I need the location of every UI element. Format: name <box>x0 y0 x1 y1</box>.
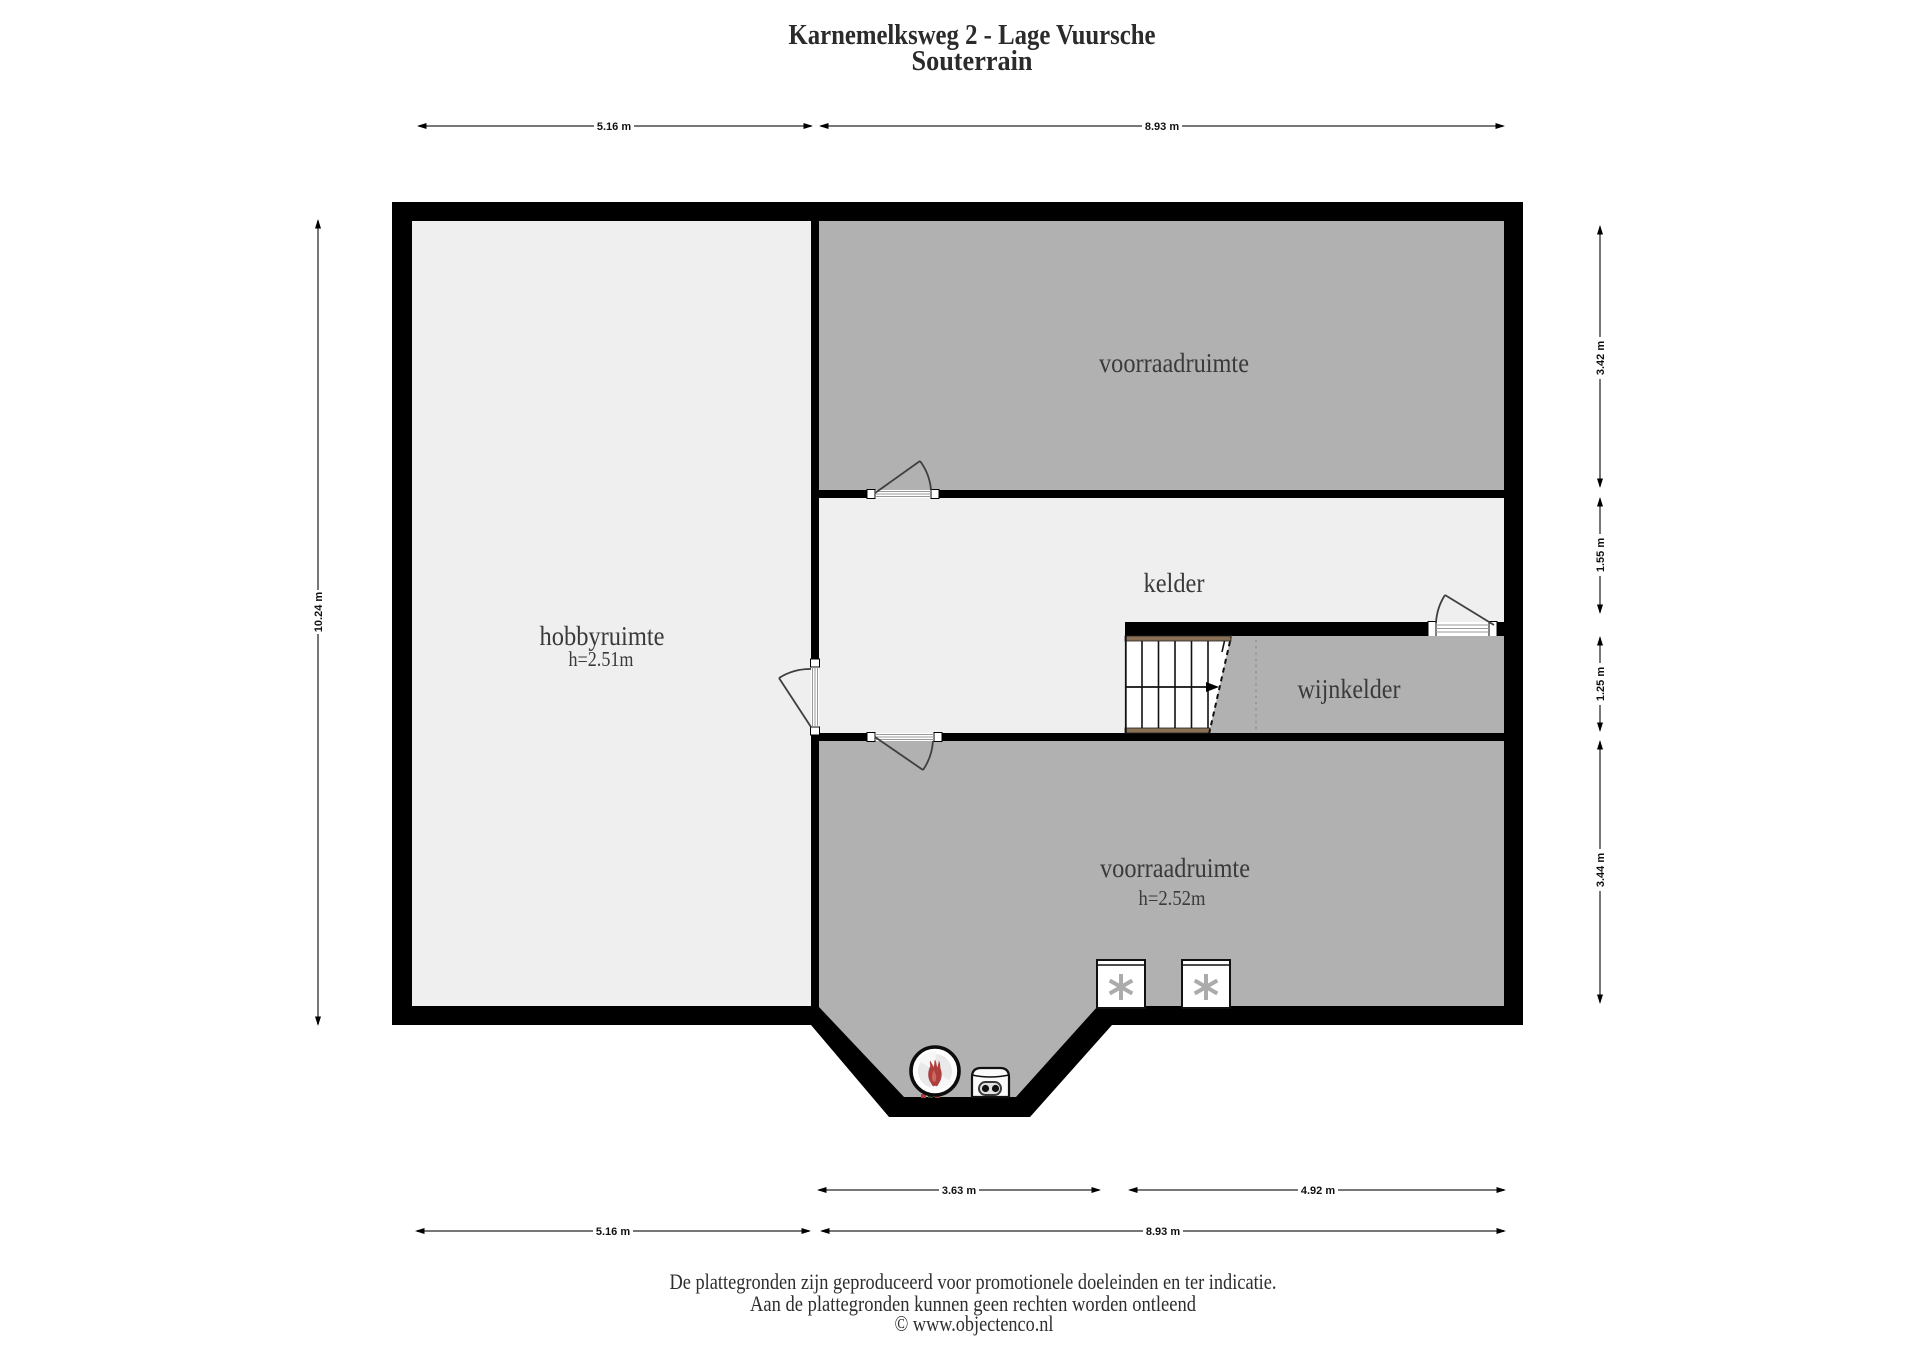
svg-text:4.92 m: 4.92 m <box>1301 1185 1335 1197</box>
svg-text:h=2.52m: h=2.52m <box>1139 886 1206 910</box>
svg-text:kelder: kelder <box>1144 568 1205 598</box>
svg-text:8.93 m: 8.93 m <box>1146 1226 1180 1238</box>
svg-text:8.93 m: 8.93 m <box>1145 121 1179 133</box>
svg-text:1.55 m: 1.55 m <box>1595 538 1607 572</box>
svg-text:5.16 m: 5.16 m <box>596 1226 630 1238</box>
svg-text:Souterrain: Souterrain <box>912 46 1033 77</box>
svg-text:3.44 m: 3.44 m <box>1595 853 1607 887</box>
svg-text:5.16 m: 5.16 m <box>597 121 631 133</box>
svg-text:1.25 m: 1.25 m <box>1595 667 1607 701</box>
svg-text:3.42 m: 3.42 m <box>1595 341 1607 375</box>
svg-text:3.63 m: 3.63 m <box>942 1185 976 1197</box>
svg-text:wijnkelder: wijnkelder <box>1298 674 1401 704</box>
svg-text:h=2.51m: h=2.51m <box>569 647 634 671</box>
svg-text:10.24 m: 10.24 m <box>313 592 325 633</box>
svg-text:voorraadruimte: voorraadruimte <box>1100 853 1250 883</box>
svg-text:© www.objectenco.nl: © www.objectenco.nl <box>895 1311 1054 1336</box>
svg-text:voorraadruimte: voorraadruimte <box>1099 348 1249 378</box>
